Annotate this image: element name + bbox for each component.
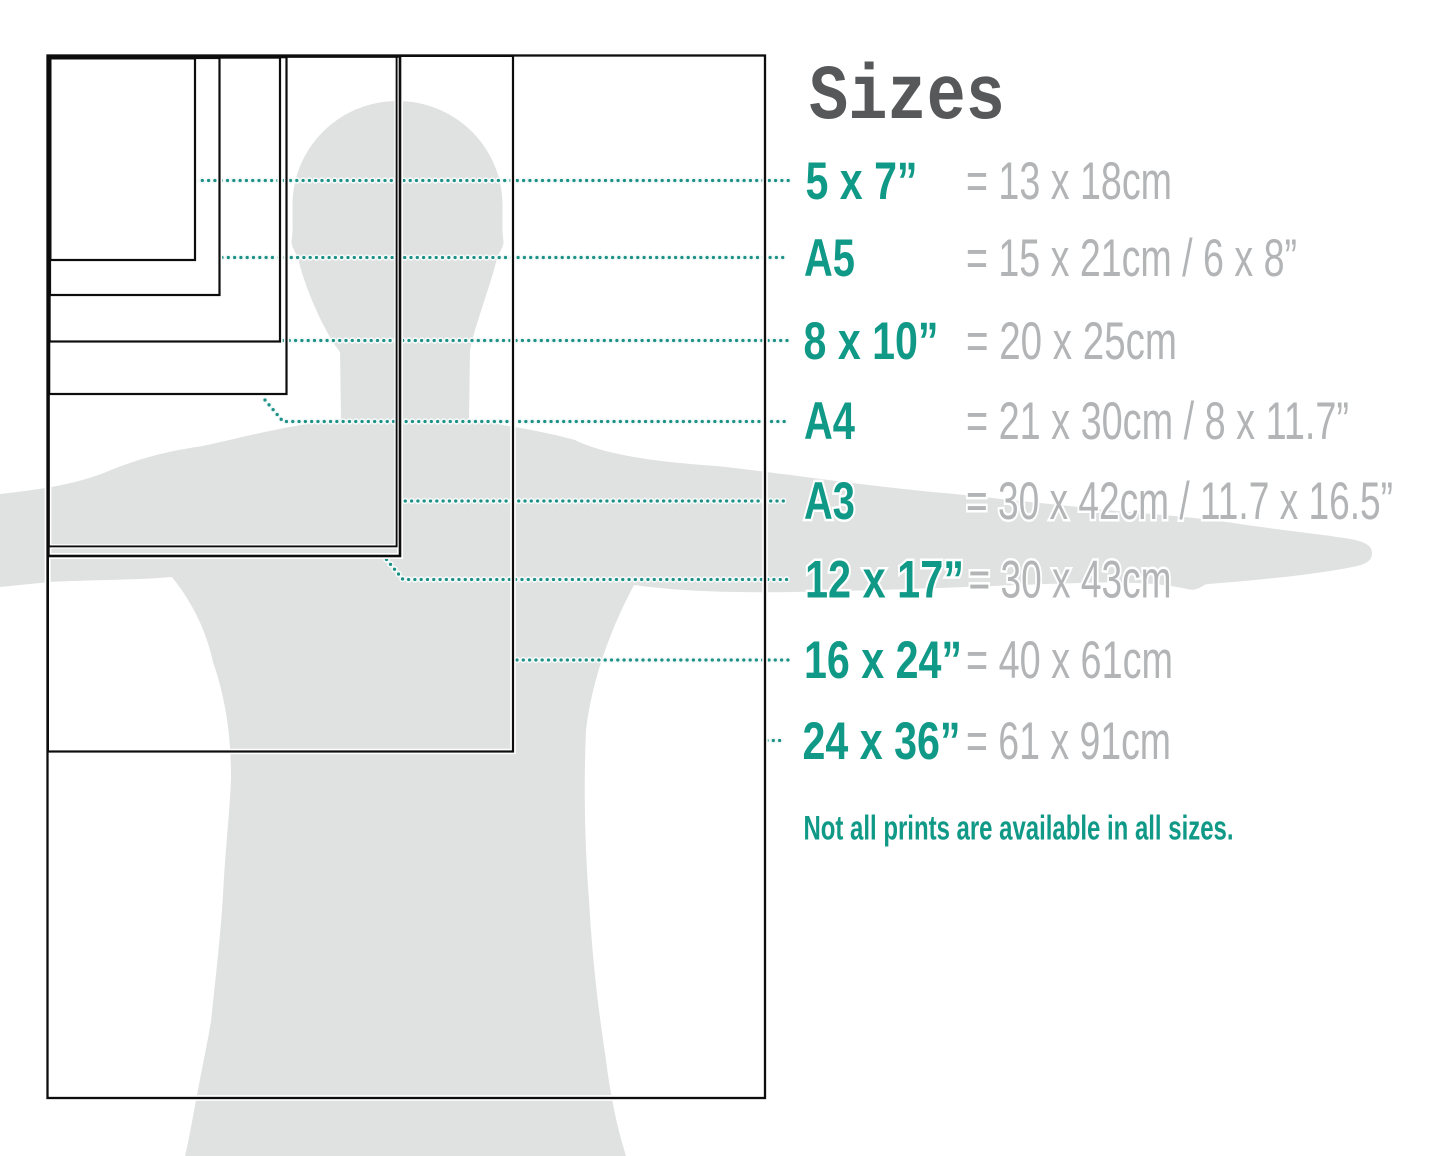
svg-text:= 15 x 21cm / 6 x 8”: = 15 x 21cm / 6 x 8” <box>966 229 1297 288</box>
svg-text:Not all prints are available i: Not all prints are available in all size… <box>804 810 1234 848</box>
svg-text:= 13 x 18cm: = 13 x 18cm <box>966 152 1172 211</box>
svg-text:= 21 x 30cm / 8 x 11.7”: = 21 x 30cm / 8 x 11.7” <box>966 392 1349 451</box>
svg-text:16 x 24”: 16 x 24” <box>804 631 962 690</box>
svg-text:Sizes: Sizes <box>809 54 1005 142</box>
svg-text:= 30 x 43cm: = 30 x 43cm <box>969 551 1172 610</box>
svg-text:= 30 x 42cm / 11.7 x 16.5”: = 30 x 42cm / 11.7 x 16.5” <box>966 472 1393 531</box>
svg-text:A4: A4 <box>804 392 855 451</box>
svg-text:24 x 36”: 24 x 36” <box>803 712 961 771</box>
svg-text:= 20 x 25cm: = 20 x 25cm <box>966 312 1177 371</box>
svg-text:A5: A5 <box>804 229 855 288</box>
svg-text:12 x 17”: 12 x 17” <box>805 551 964 610</box>
svg-text:8 x 10”: 8 x 10” <box>804 312 939 371</box>
svg-text:5 x 7”: 5 x 7” <box>806 152 918 211</box>
svg-text:= 61 x 91cm: = 61 x 91cm <box>966 712 1171 771</box>
svg-text:= 40 x 61cm: = 40 x 61cm <box>966 631 1173 690</box>
svg-text:A3: A3 <box>804 472 855 531</box>
